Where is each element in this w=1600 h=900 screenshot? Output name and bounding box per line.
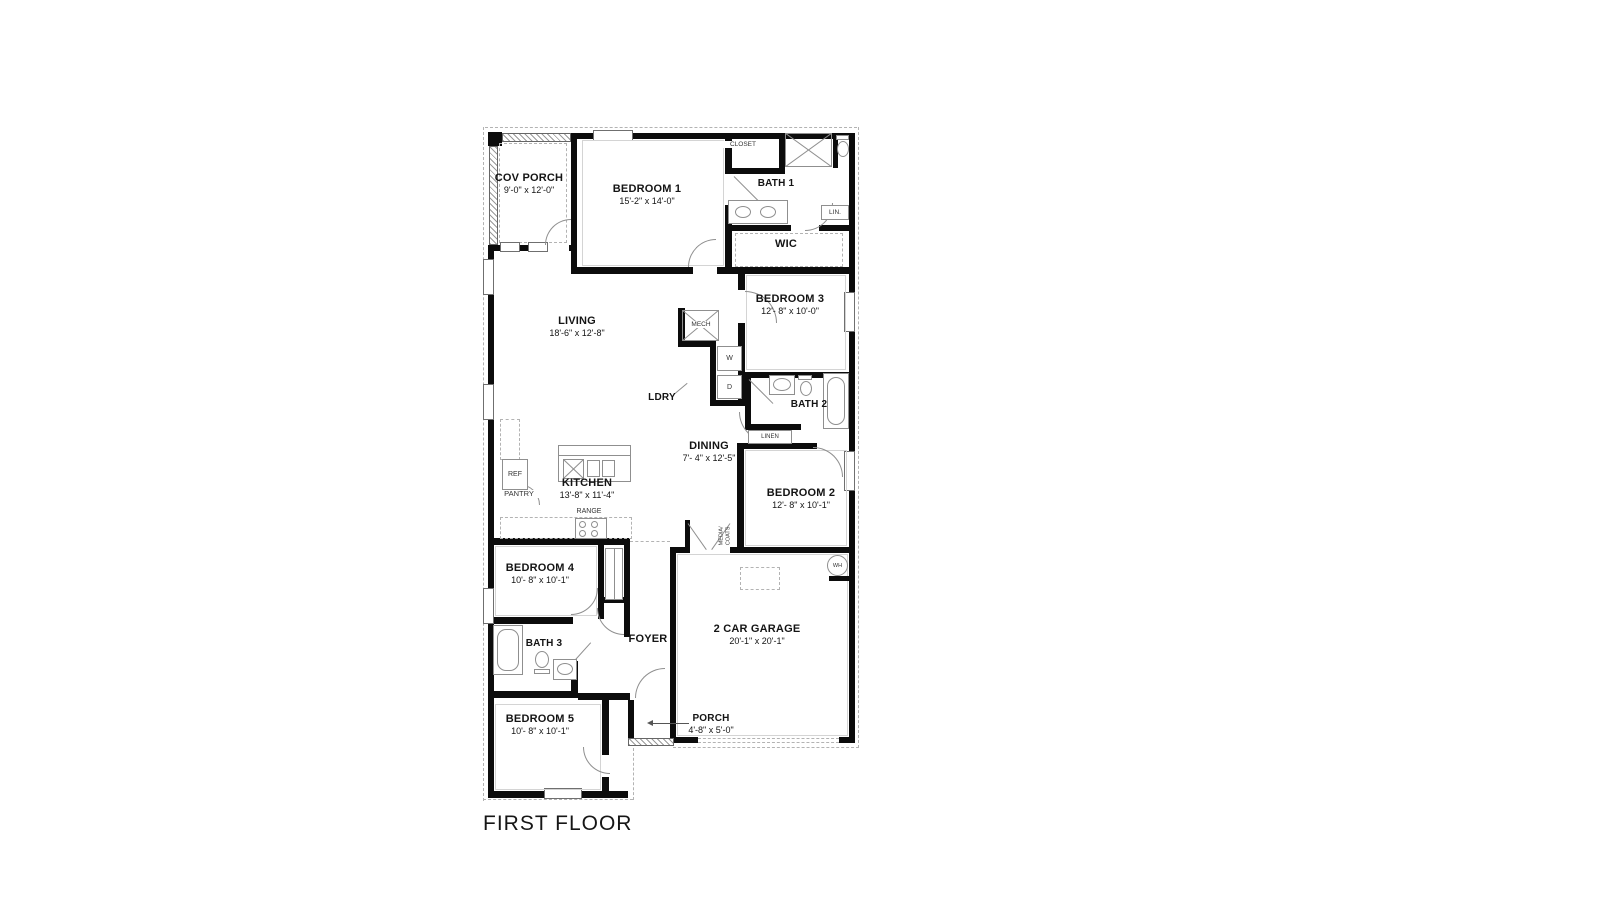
room-name: LIVING [527,315,627,328]
window [483,259,494,295]
room-label-closet: CLOSET [718,141,768,148]
room-name: BATH 3 [514,638,574,650]
burner [591,521,598,528]
toilet [836,135,849,140]
room-dims: 18'-6" x 12'-8" [527,328,627,339]
toilet [534,669,550,674]
dashed-outline-bottom-left [483,799,633,800]
room-label-foyer: FOYER [618,633,678,646]
porch-step-hatch [628,738,674,746]
media-coats-label: MEDIA/ COATS [716,519,734,553]
washer-box: W [717,346,742,371]
wall [624,545,630,603]
kitchen-counter [500,517,632,539]
room-label-dining: DINING 7'- 4" x 12'-5" [659,440,759,464]
room-name: BEDROOM 2 [751,487,851,500]
room-label-porch: PORCH 4'-8" x 5'-0" [675,713,747,736]
room-name: WIC [756,238,816,251]
bathtub [497,629,519,671]
room-label-bedroom1: BEDROOM 1 15'-2" x 14'-0" [597,183,697,207]
island-counter-line [558,455,631,456]
wall [624,603,630,637]
room-label-cov-porch: COV PORCH 9'-0" x 12'-0" [489,172,569,196]
room-name: LDRY [632,392,692,404]
wall [725,133,732,174]
dishwasher [602,460,615,477]
kitchen-dining-dash [630,541,670,542]
sink [735,206,751,218]
room-label-garage: 2 CAR GARAGE 20'-1" x 20'-1" [707,623,807,647]
room-name: PORCH [675,713,747,725]
wall [819,225,849,231]
room-dims: 13'-8" x 11'-4" [537,490,637,501]
range-label: RANGE [559,508,619,516]
floorplan: LIN. MECH W D LINEN REF [483,127,863,809]
dashed-outline-top [485,127,857,128]
room-label-kitchen: KITCHEN 13'-8" x 11'-4" [537,477,637,501]
wall [571,133,577,274]
room-dims: 12'- 8" x 10'-1" [751,500,851,511]
window [483,588,494,624]
shower [785,133,832,167]
wall [488,791,545,798]
room-name: COV PORCH [489,172,569,185]
toilet [800,381,812,396]
wall [488,691,578,698]
mech-label: MECH [686,321,716,328]
room-dims: 20'-1" x 20'-1" [707,636,807,647]
dashed-outline-left [483,127,484,801]
toilet [535,651,549,668]
room-name: 2 CAR GARAGE [707,623,807,636]
wall [602,777,609,798]
sink [557,663,573,675]
burner [579,530,586,537]
wall [598,545,604,603]
refrigerator-box: REF [502,459,528,490]
room-name: FOYER [618,633,678,646]
wall [628,700,634,742]
toilet [798,375,812,380]
room-label-bedroom2: BEDROOM 2 12'- 8" x 10'-1" [751,487,851,511]
wall [710,341,716,406]
attic-access [740,567,780,590]
water-heater: WH [827,555,848,576]
wall [839,737,855,743]
burner [579,521,586,528]
kitchen-counter [500,419,520,460]
wall [829,576,855,581]
room-dims: 10'- 8" x 10'-1" [490,575,590,586]
room-dims: 12'- 8" x 10'-0" [740,306,840,317]
window [483,384,494,420]
wall [738,273,745,290]
room-name: BEDROOM 4 [490,562,590,575]
room-label-bath3: BATH 3 [514,638,574,650]
garage-door-line [698,742,839,743]
porch-hatched-wall-top [502,133,571,142]
room-label-bath2: BATH 2 [779,399,839,411]
room-label-pantry: PANTRY [497,490,541,498]
plan-title: FIRST FLOOR [483,812,632,836]
dryer-box: D [717,375,742,399]
dishwasher [587,460,600,477]
toilet [837,141,849,157]
room-label-ldry: LDRY [632,392,692,404]
sink [773,378,791,391]
room-dims: 15'-2" x 14'-0" [597,196,697,207]
wall [576,267,693,274]
room-label-wic: WIC [756,238,816,251]
room-label-bedroom4: BEDROOM 4 10'- 8" x 10'-1" [490,562,590,586]
wall [488,538,630,545]
sink [760,206,776,218]
dashed-outline-right [858,127,859,748]
wall [488,617,573,624]
linen-closet-label: LIN. [821,205,849,220]
door-arc [635,668,665,698]
door-arc [597,608,624,635]
room-label-living: LIVING 18'-6" x 12'-8" [527,315,627,339]
island-sink [563,459,584,479]
porch-leader-arrow [647,720,653,726]
room-label-bedroom3: BEDROOM 3 12'- 8" x 10'-0" [740,293,840,317]
page: LIN. MECH W D LINEN REF [0,0,1600,900]
room-name: BEDROOM 3 [740,293,840,306]
room-name: BEDROOM 5 [490,713,590,726]
garage-door-line [698,738,839,739]
room-name: BATH 1 [746,178,806,190]
room-name: DINING [659,440,759,453]
dashed-outline-connector [633,748,634,800]
room-dims: 9'-0" x 12'-0" [489,185,569,196]
media-coats-line1: MEDIA/ [718,527,724,546]
room-name: KITCHEN [537,477,637,490]
room-dims: 7'- 4" x 12'-5" [659,453,759,464]
room-label-bath1: BATH 1 [746,178,806,190]
burner [591,530,598,537]
closet-slider-line [614,548,615,600]
media-coats-line2: COATS [725,527,731,546]
wall [849,133,855,743]
porch-sill [500,242,520,252]
wall [717,267,849,274]
room-label-bedroom5: BEDROOM 5 10'- 8" x 10'-1" [490,713,590,737]
wall [670,737,698,743]
room-name: BATH 2 [779,399,839,411]
wall [727,225,791,231]
wall [730,547,849,553]
wall [578,693,630,700]
room-name: BEDROOM 1 [597,183,697,196]
room-dims: 4'-8" x 5'-0" [675,725,747,736]
wall [732,168,785,174]
door-leaf [688,523,707,550]
dashed-outline-garage [673,747,859,748]
room-dims: 10'- 8" x 10'-1" [490,726,590,737]
